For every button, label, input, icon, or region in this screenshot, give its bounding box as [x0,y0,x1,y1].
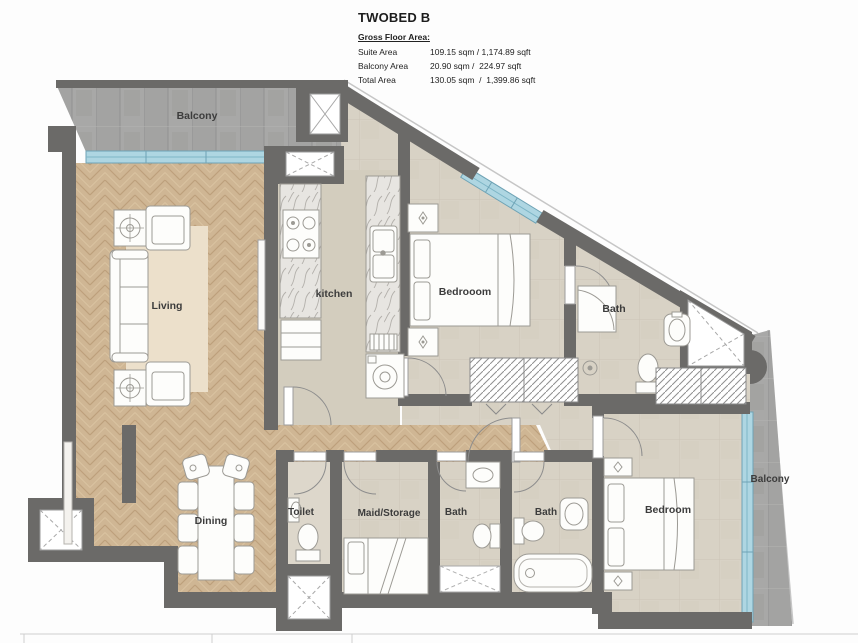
bedroom2-furniture [604,458,694,590]
gross-floor-area-heading: Gross Floor Area: [358,32,578,42]
shaft-kitchen-top [286,152,334,176]
shaft-top [310,94,340,134]
armchair-top [146,206,190,250]
shaft-bottom-center [288,576,330,619]
room-label-bath1: Bath [602,303,625,315]
plan-title: TWOBED B [358,10,578,25]
toilet-icon [473,524,500,548]
area-row-value: 130.05 sqm / 1,399.86 sqft [430,75,535,85]
area-row-label: Suite Area [358,47,430,57]
bottom-table-edge [20,634,858,643]
shaft-top-right [688,300,744,366]
room-label-living: Living [152,300,183,312]
dining-chair [178,546,198,574]
sink-icon [664,312,690,346]
nightstand [604,572,632,590]
room-label-bedroom2: Bedroom [645,504,691,516]
kitchen-sink-icon [370,226,397,282]
living-kitchen-door-leaf [258,240,265,330]
toilet-icon [296,524,320,561]
room-label-kitchen: kitchen [316,288,353,300]
title-block: TWOBED B Gross Floor Area: Suite Area 10… [358,10,578,89]
dish-rack-icon [370,334,397,350]
stove-icon [283,210,319,258]
room-label-balcony-top: Balcony [177,110,218,122]
room-label-balcony-right: Balcony [751,474,790,485]
armchair-bottom [146,362,190,406]
shaft-bottom-left [40,510,82,550]
nightstand [408,328,438,356]
area-row-label: Balcony Area [358,61,430,71]
side-table-lamp-bottom [114,370,146,406]
bathtub-icon [514,554,592,592]
room-label-maid: Maid/Storage [358,508,421,519]
room-label-bath2: Bath [445,507,467,518]
single-bed [344,538,428,594]
floor-plan-page: Balcony Living kitchen Bedrooom Bath Din… [0,0,858,643]
dining-chair [234,514,254,542]
dining-chair [234,482,254,510]
wardrobe-bedroom2 [656,368,746,404]
dining-chair [178,482,198,510]
area-row-value: 109.15 sqm / 1,174.89 sqft [430,47,531,57]
room-label-dining: Dining [195,515,228,527]
dining-chair [234,546,254,574]
room-label-toilet: Toilet [288,507,315,518]
sink-icon [560,498,588,530]
kitchen-cabinet [281,320,321,360]
bedroom2-window [742,412,753,622]
nightstand [604,458,632,476]
washing-machine-icon [366,354,404,398]
floor-plan-svg: Balcony Living kitchen Bedrooom Bath Din… [0,0,858,643]
area-row: Suite Area 109.15 sqm / 1,174.89 sqft [358,47,578,57]
area-row: Balcony Area 20.90 sqm / 224.97 sqft [358,61,578,71]
sofa [110,250,148,362]
area-row: Total Area 130.05 sqm / 1,399.86 sqft [358,75,578,85]
living-window [86,151,266,163]
area-row-value: 20.90 sqm / 224.97 sqft [430,61,521,71]
sink-icon [466,462,500,488]
left-wall-panel [64,442,72,544]
room-label-bedroom1: Bedrooom [439,286,492,298]
maid-furniture [344,538,428,594]
room-label-bath3: Bath [535,507,557,518]
side-table-lamp-top [114,210,146,246]
nightstand [408,204,438,232]
bed [410,234,530,326]
duct-bath2 [440,566,500,592]
bed [604,478,694,570]
area-row-label: Total Area [358,75,430,85]
